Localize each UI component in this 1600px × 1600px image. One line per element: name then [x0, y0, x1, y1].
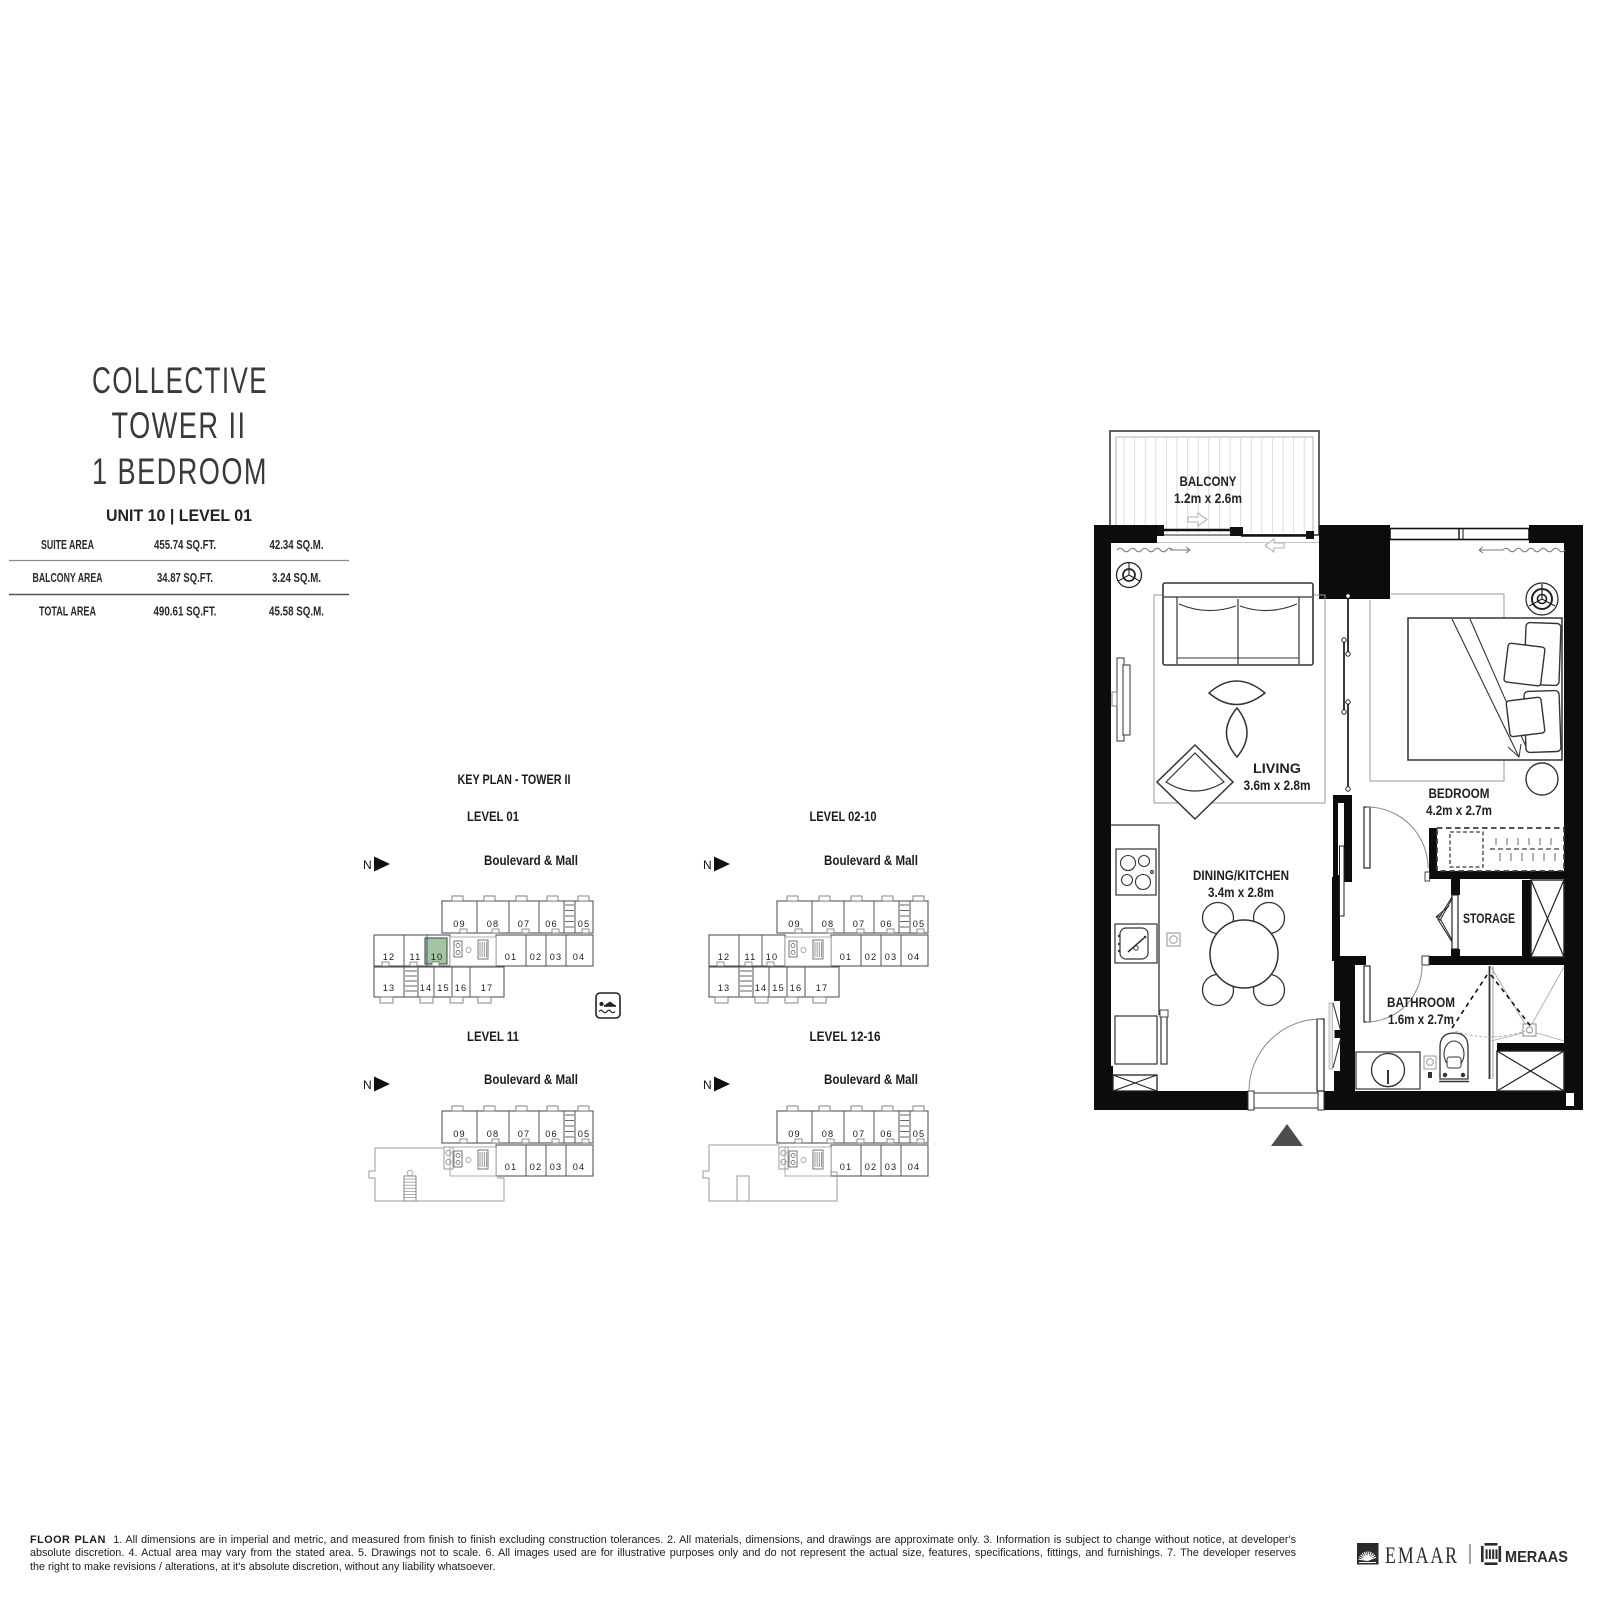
svg-text:SUITE AREA: SUITE AREA	[41, 537, 94, 552]
svg-text:34.87 SQ.FT.: 34.87 SQ.FT.	[157, 570, 213, 585]
svg-text:TOTAL AREA: TOTAL AREA	[39, 604, 96, 619]
svg-text:N: N	[363, 1078, 372, 1092]
svg-text:KEY PLAN - TOWER II: KEY PLAN - TOWER II	[458, 771, 571, 787]
svg-text:UNIT 10 | LEVEL 01: UNIT 10 | LEVEL 01	[106, 507, 252, 525]
svg-text:LEVEL 11: LEVEL 11	[467, 1028, 519, 1044]
svg-text:N: N	[703, 858, 712, 872]
svg-text:BEDROOM: BEDROOM	[1429, 786, 1490, 801]
svg-text:1 BEDROOM: 1 BEDROOM	[92, 451, 268, 492]
svg-text:BALCONY AREA: BALCONY AREA	[33, 570, 103, 585]
svg-text:LIVING: LIVING	[1253, 761, 1301, 776]
svg-text:42.34 SQ.M.: 42.34 SQ.M.	[270, 537, 324, 552]
svg-text:Boulevard & Mall: Boulevard & Mall	[824, 1071, 918, 1087]
svg-text:3.4m x 2.8m: 3.4m x 2.8m	[1208, 885, 1274, 900]
svg-text:455.74 SQ.FT.: 455.74 SQ.FT.	[154, 537, 216, 552]
svg-text:COLLECTIVE: COLLECTIVE	[92, 360, 268, 401]
svg-text:Boulevard & Mall: Boulevard & Mall	[484, 852, 578, 868]
svg-text:490.61 SQ.FT.: 490.61 SQ.FT.	[154, 604, 217, 619]
svg-text:LEVEL 01: LEVEL 01	[467, 808, 519, 824]
svg-text:Boulevard & Mall: Boulevard & Mall	[824, 852, 918, 868]
svg-text:N: N	[363, 858, 372, 872]
svg-text:3.24 SQ.M.: 3.24 SQ.M.	[272, 570, 321, 585]
svg-text:LEVEL 02-10: LEVEL 02-10	[810, 808, 877, 824]
svg-text:4.2m x 2.7m: 4.2m x 2.7m	[1426, 803, 1492, 818]
svg-text:N: N	[703, 1078, 712, 1092]
svg-text:LEVEL 12-16: LEVEL 12-16	[810, 1028, 881, 1044]
svg-text:1.2m x 2.6m: 1.2m x 2.6m	[1174, 491, 1242, 506]
svg-text:BATHROOM: BATHROOM	[1387, 995, 1455, 1010]
svg-text:BALCONY: BALCONY	[1180, 474, 1237, 489]
svg-text:STORAGE: STORAGE	[1463, 911, 1515, 926]
svg-text:Boulevard & Mall: Boulevard & Mall	[484, 1071, 578, 1087]
svg-text:DINING/KITCHEN: DINING/KITCHEN	[1193, 868, 1289, 883]
svg-text:MERAAS: MERAAS	[1505, 1549, 1568, 1566]
svg-text:1.6m x 2.7m: 1.6m x 2.7m	[1388, 1012, 1454, 1027]
svg-text:3.6m x 2.8m: 3.6m x 2.8m	[1244, 778, 1311, 793]
svg-text:TOWER II: TOWER II	[112, 405, 247, 446]
svg-text:45.58 SQ.M.: 45.58 SQ.M.	[269, 604, 324, 619]
svg-text:EMAAR: EMAAR	[1385, 1543, 1459, 1568]
